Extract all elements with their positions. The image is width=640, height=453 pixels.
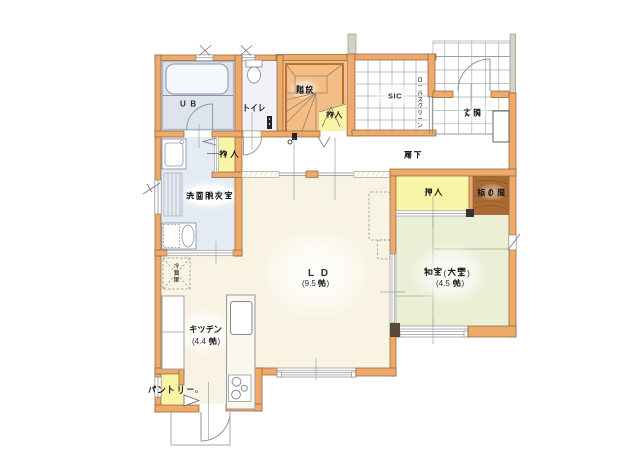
svg-text:): )	[218, 337, 221, 346]
svg-text:U B: U B	[180, 100, 197, 109]
svg-text:): )	[327, 279, 330, 288]
svg-text:L D: L D	[308, 268, 330, 279]
svg-text:(4.5: (4.5	[436, 279, 450, 288]
svg-text:): )	[467, 268, 470, 278]
svg-text:): )	[462, 279, 465, 288]
svg-text:(4.4: (4.4	[192, 337, 206, 346]
svg-text:SIC: SIC	[388, 92, 402, 101]
svg-text:(: (	[444, 268, 447, 278]
svg-text:(9.5: (9.5	[302, 279, 316, 288]
